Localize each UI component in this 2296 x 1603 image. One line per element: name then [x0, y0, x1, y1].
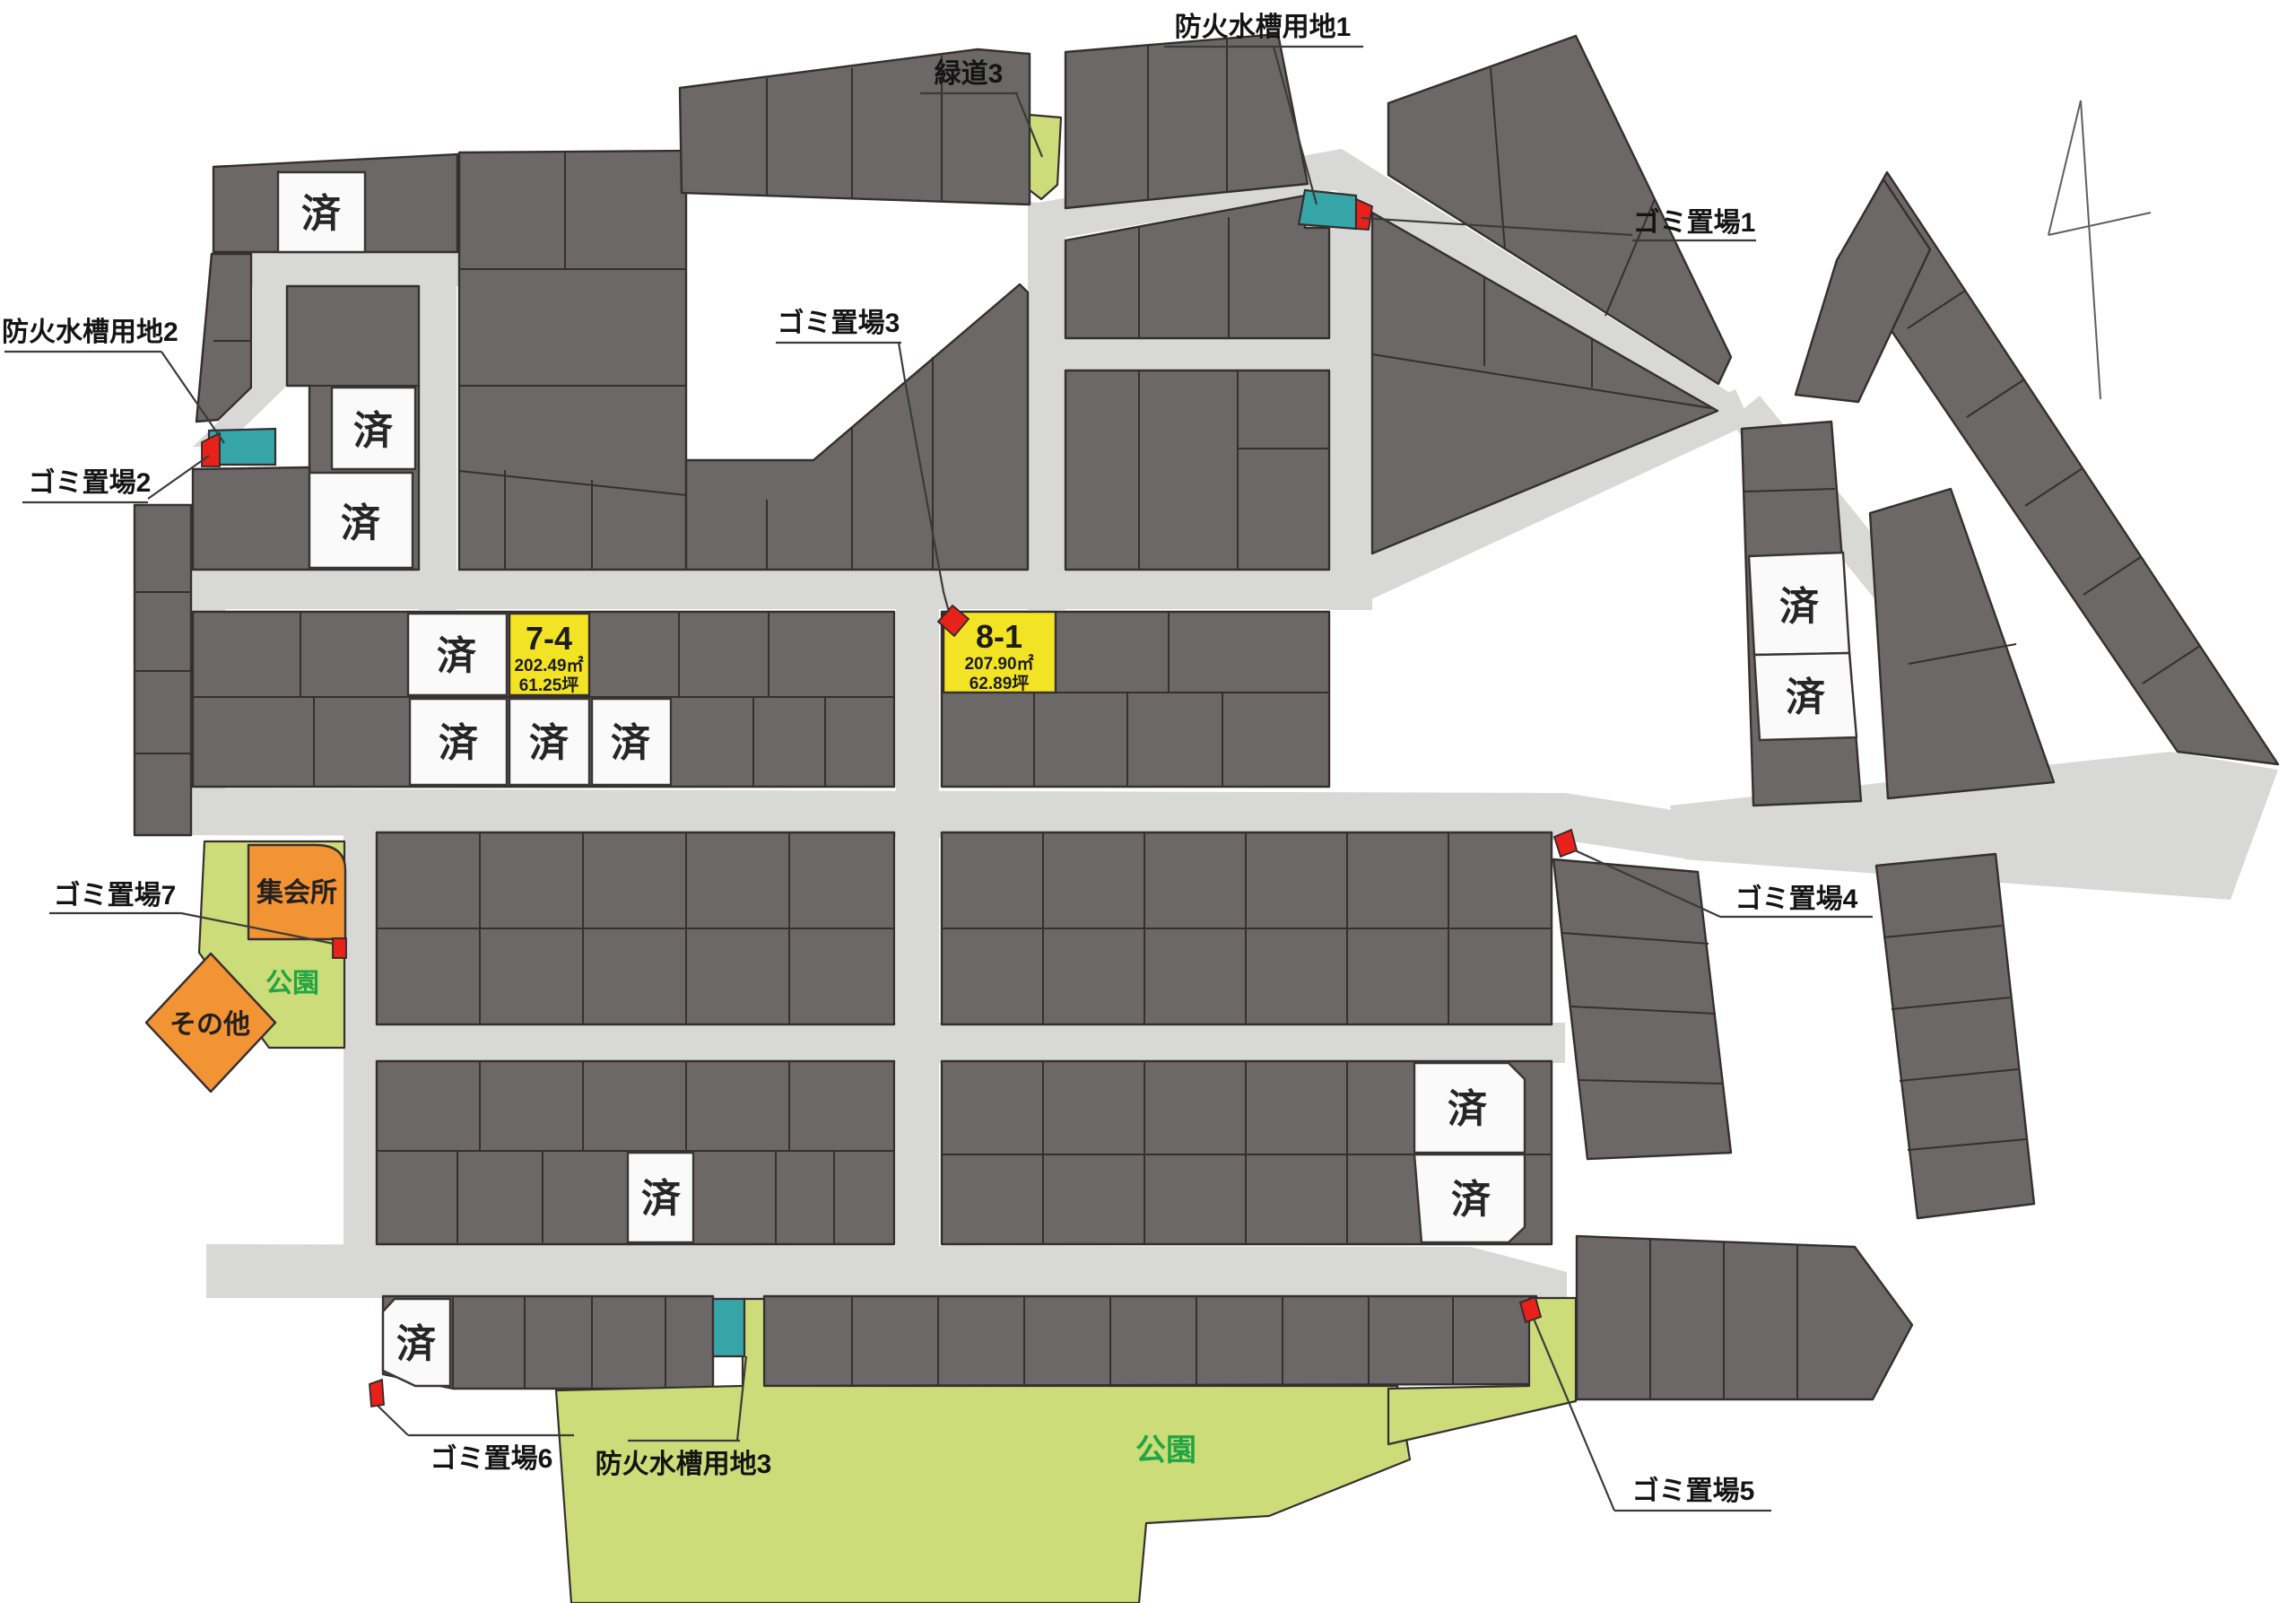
sold-mark: 済 [529, 721, 570, 765]
road-topleft-v2 [419, 286, 457, 610]
block-I [1577, 1236, 1912, 1399]
callout-fire1: 防火水槽用地1 [1175, 13, 1352, 42]
sold-mark: 済 [1451, 1178, 1492, 1222]
block-topleft-bottomrow [193, 467, 309, 570]
block-topleft-rightcol [459, 151, 686, 570]
column-H [1876, 854, 2034, 1218]
road-v0 [344, 812, 381, 1296]
north-arrow-icon [2048, 100, 2151, 399]
road-mid-h2b [359, 1023, 1565, 1063]
block-topleft-leftcol [196, 254, 251, 422]
other-label: その他 [170, 1010, 250, 1040]
sold-mark: 済 [301, 192, 342, 236]
road-topleft-h [251, 252, 459, 286]
callout-trash3: ゴミ置場3 [778, 308, 900, 338]
sold-mark: 済 [611, 721, 651, 765]
park-upper-label: 公園 [265, 969, 319, 998]
road-v2-right [1329, 206, 1372, 610]
lot-8-1-tsubo: 62.89坪 [970, 674, 1030, 693]
callout-trash1: ゴミ置場1 [1633, 207, 1756, 238]
sold-mark: 済 [641, 1177, 682, 1221]
leader-trash6 [377, 1405, 574, 1435]
block-top-band-b [1065, 34, 1308, 208]
greenway-3-strip [1030, 115, 1061, 199]
road-v2a-greenway [1028, 202, 1065, 610]
subdivision-map: 防火水槽用地1 緑道3 ゴミ置場1 防火水槽用地2 ゴミ置場2 ゴミ置場3 ゴミ… [0, 0, 2296, 1603]
callout-trash4: ゴミ置場4 [1735, 884, 1858, 914]
sold-mark: 済 [353, 409, 394, 453]
lot-8-1-area: 207.90㎡ [964, 653, 1033, 674]
lot-8-1-number: 8-1 [976, 618, 1022, 655]
sold-mark: 済 [1779, 585, 1820, 629]
leader-fire2 [4, 352, 224, 443]
site-plan-page: 防火水槽用地1 緑道3 ゴミ置場1 防火水槽用地2 ゴミ置場2 ゴミ置場3 ゴミ… [0, 0, 2296, 1603]
sold-mark: 済 [1448, 1087, 1488, 1131]
callout-trash2: ゴミ置場2 [29, 467, 152, 498]
trash-site-6 [370, 1380, 384, 1407]
road-f-horizontal [1065, 338, 1329, 370]
block-f [1065, 370, 1329, 570]
lot-7-4-number: 7-4 [526, 620, 572, 657]
callout-green3: 緑道3 [935, 58, 1004, 89]
trash-site-7 [333, 938, 346, 958]
sold-mark: 済 [437, 634, 477, 678]
block-bottom-right [764, 1296, 1536, 1386]
callout-fire3: 防火水槽用地3 [596, 1450, 772, 1479]
road-v-center [896, 589, 939, 1294]
callout-trash7: ゴミ置場7 [54, 880, 177, 910]
sold-mark: 済 [341, 501, 381, 545]
lot-7-4-tsubo: 61.25坪 [519, 675, 579, 695]
park-lower-label: 公園 [1135, 1433, 1196, 1468]
road-mid-h1 [191, 570, 1352, 609]
sold-mark: 済 [439, 721, 479, 765]
road-south-h3 [206, 1244, 1567, 1298]
fire-tank-1 [1299, 190, 1356, 229]
sold-mark: 済 [1786, 675, 1826, 719]
lot-7-4-area: 202.49㎡ [514, 655, 583, 675]
sold-mark: 済 [396, 1322, 437, 1366]
fire-tank-3 [713, 1299, 744, 1356]
triangle-mid-column [1870, 489, 2054, 798]
callout-trash6: ゴミ置場6 [430, 1443, 553, 1474]
callout-trash5: ゴミ置場5 [1632, 1476, 1755, 1506]
callout-fire2: 防火水槽用地2 [2, 318, 178, 347]
meeting-hall-label: 集会所 [256, 878, 337, 908]
